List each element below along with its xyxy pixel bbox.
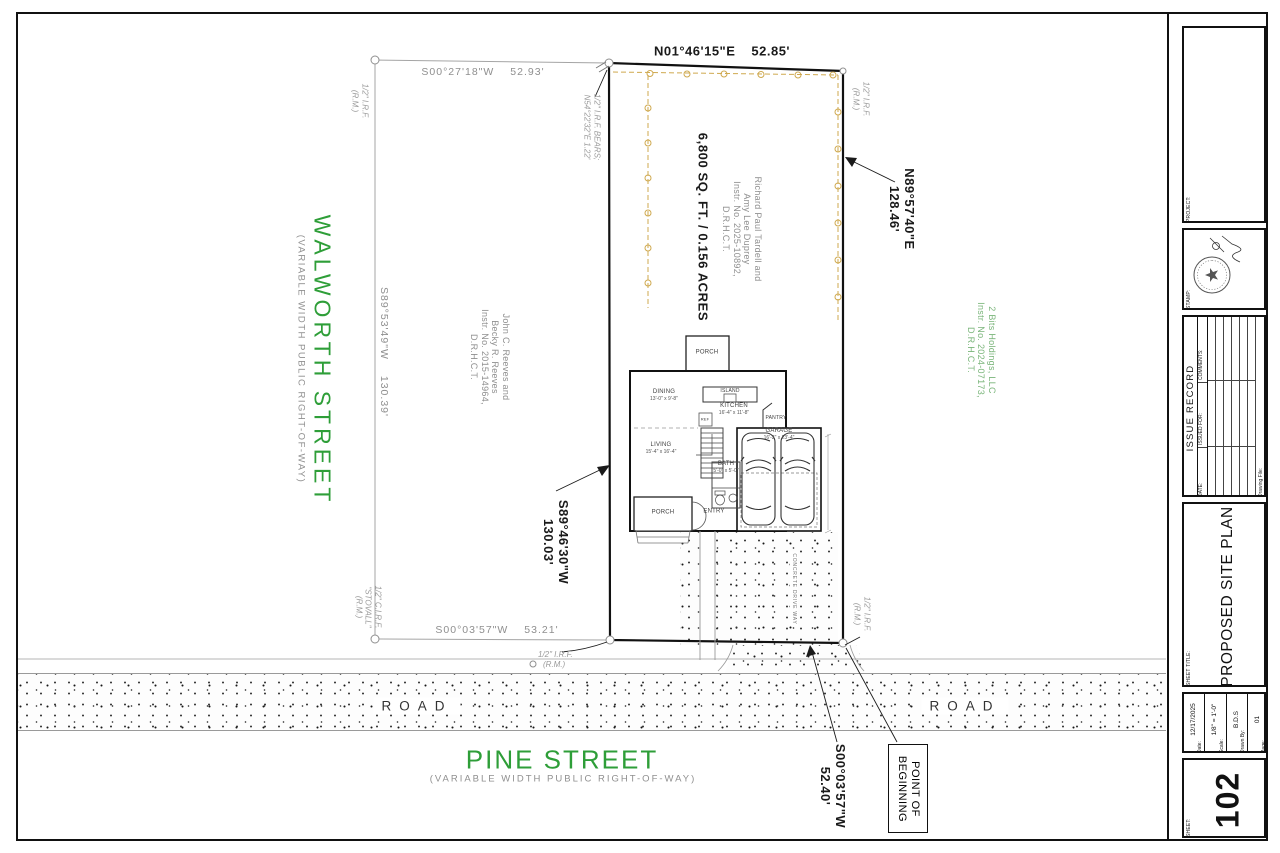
titleblock-sheet-number-box: SHEET: 102 xyxy=(1182,758,1266,838)
sheet-border xyxy=(16,12,1268,841)
field-drawn-by: Drawn By: B.D.S xyxy=(1227,694,1248,753)
issue-record-row xyxy=(1224,317,1232,497)
field-scale: Scale: 1/8" = 1'-0" xyxy=(1205,694,1226,753)
issue-col-comments: COMMENTS: xyxy=(1198,317,1207,382)
titleblock-divider xyxy=(1167,12,1169,841)
issue-record-header: DATE: ISSUED FOR: COMMENTS: xyxy=(1198,317,1208,497)
titleblock-issue-record-box: ISSUE RECORD DATE: ISSUED FOR: COMMENTS:… xyxy=(1182,315,1266,497)
issue-record-title: ISSUE RECORD xyxy=(1184,317,1198,497)
issue-record-row xyxy=(1216,317,1224,497)
issue-col-date: DATE: xyxy=(1198,447,1207,497)
issue-record-row xyxy=(1208,317,1216,497)
titleblock-stamp-box: STAMP: xyxy=(1182,228,1266,310)
titleblock-sheet-title-box: SHEET TITLE: PROPOSED SITE PLAN xyxy=(1182,502,1266,687)
site-plan-sheet: WALWORTH STREET (VARIABLE WIDTH PUBLIC R… xyxy=(0,0,1280,853)
sheet-number-label: SHEET: xyxy=(1186,818,1192,837)
issue-record-row xyxy=(1248,317,1256,497)
drawing-file-label: Drawing File: xyxy=(1256,317,1264,497)
issue-record-row xyxy=(1240,317,1248,497)
project-label: PROJECT: xyxy=(1186,196,1192,222)
titleblock-fields-box: Date: 12/17/2025 Scale: 1/8" = 1'-0" Dra… xyxy=(1182,692,1266,753)
sheet-number: 102 xyxy=(1209,772,1246,828)
surveyor-seal-icon xyxy=(1184,230,1266,310)
titleblock-project-box: PROJECT: xyxy=(1182,26,1266,223)
sheet-title: PROPOSED SITE PLAN xyxy=(1219,506,1237,686)
field-page: Page: 01 xyxy=(1248,694,1266,753)
field-date: Date: 12/17/2025 xyxy=(1184,694,1205,753)
issue-record-row xyxy=(1232,317,1240,497)
issue-col-issued-for: ISSUED FOR: xyxy=(1198,382,1207,447)
signature-icon xyxy=(1222,236,1241,262)
sheet-title-label: SHEET TITLE: xyxy=(1186,651,1192,686)
